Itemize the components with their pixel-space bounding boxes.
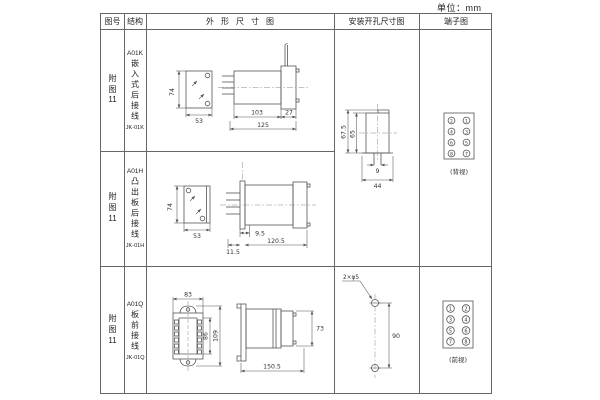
dim-label: 53 xyxy=(195,118,203,125)
terminal-cell-rear: 2 1 4 3 6 5 8 7 (背视) xyxy=(419,29,493,266)
outline-drawing-a01h: 74 53 9.5 xyxy=(146,151,334,266)
dim-label: 73 xyxy=(316,326,324,333)
terminal-number: 8 xyxy=(450,151,453,157)
type-code: JK-01Q xyxy=(126,355,145,361)
dim-label: 27 xyxy=(285,110,293,117)
structure-label: 板前接线 xyxy=(130,310,141,352)
terminal-number: 8 xyxy=(464,339,467,345)
view-caption: (背视) xyxy=(450,167,468,176)
dim-label: 150.5 xyxy=(263,364,281,371)
dim-label: 44 xyxy=(374,183,382,190)
header-mounting: 安装开孔尺寸图 xyxy=(334,14,419,29)
dimension-table: 图号 结构 外形尺寸图 安装开孔尺寸图 端子图 附 图 11 附 图 11 附 … xyxy=(100,13,492,394)
terminal-number: 1 xyxy=(465,118,468,124)
dim-label: 9.5 xyxy=(255,231,265,238)
terminal-number: 2 xyxy=(464,306,467,312)
terminal-number: 7 xyxy=(449,339,452,345)
terminal-number: 4 xyxy=(464,317,467,323)
figure-no-row1: 附 图 11 xyxy=(101,29,124,151)
model-label: A01H xyxy=(127,168,143,175)
mounting-drawing-rear: 67.5 65 9 44 xyxy=(334,29,419,266)
header-terminal: 端子图 xyxy=(419,14,493,29)
terminal-number: 6 xyxy=(450,140,453,146)
structure-row2: A01H 凸出板后接线 JK-01H xyxy=(124,151,146,266)
hole-callout: 2×φ5 xyxy=(343,275,359,281)
dim-label: 9 xyxy=(376,168,380,175)
dim-label: 74 xyxy=(169,88,176,96)
terminal-number: 2 xyxy=(450,118,453,124)
dim-label: 120.5 xyxy=(267,238,285,245)
dim-label: 109 xyxy=(213,330,220,342)
terminal-number: 3 xyxy=(465,129,468,135)
figure-no-row2: 附 图 11 xyxy=(101,151,124,266)
terminal-diagram-front: 1 2 3 4 5 6 7 8 (前视) xyxy=(419,266,493,395)
dim-label: 86 xyxy=(203,332,210,340)
type-code: JK-01H xyxy=(126,243,144,249)
outline-cell-a01k: 74 53 103 xyxy=(146,29,334,151)
dim-label: 11.5 xyxy=(226,249,240,256)
header-structure: 结构 xyxy=(124,14,146,29)
datasheet-page: 单位：mm 图号 结构 外形尺寸图 安装开孔尺寸图 端子图 附 图 11 附 图… xyxy=(0,0,600,400)
dim-label: 53 xyxy=(193,233,201,240)
figure-no-row3: 附 图 11 xyxy=(101,266,124,395)
terminal-cell-front: 1 2 3 4 5 6 7 8 (前视) xyxy=(419,266,493,395)
terminal-number: 6 xyxy=(464,328,467,334)
terminal-diagram-rear: 2 1 4 3 6 5 8 7 (背视) xyxy=(419,29,493,266)
dim-label: 65 xyxy=(350,130,357,138)
header-outline: 外形尺寸图 xyxy=(146,14,334,29)
mounting-drawing-front: 2×φ5 90 xyxy=(334,266,419,395)
model-label: A01K xyxy=(127,50,143,57)
mounting-cell-front: 2×φ5 90 xyxy=(334,266,419,395)
terminal-number: 5 xyxy=(449,328,452,334)
outline-drawing-a01k: 74 53 103 xyxy=(146,29,334,151)
structure-label: 凸出板后接线 xyxy=(130,177,141,240)
terminal-number: 7 xyxy=(465,151,468,157)
dim-label: 90 xyxy=(392,333,400,340)
outline-drawing-a01q: 83 86 109 73 xyxy=(146,266,334,395)
view-caption: (前视) xyxy=(449,355,467,364)
model-label: A01Q xyxy=(127,301,144,308)
header-figure-no: 图号 xyxy=(101,14,124,29)
dim-label: 74 xyxy=(167,203,174,211)
terminal-number: 3 xyxy=(449,317,452,323)
terminal-number: 5 xyxy=(465,140,468,146)
dim-label: 83 xyxy=(184,292,192,299)
dim-label: 67.5 xyxy=(341,125,348,139)
dim-label: 125 xyxy=(257,122,269,129)
structure-row1: A01K 嵌入式后接线 JK-01K xyxy=(124,29,146,151)
outline-cell-a01q: 83 86 109 73 xyxy=(146,266,334,395)
mounting-cell-rear: 67.5 65 9 44 xyxy=(334,29,419,266)
type-code: JK-01K xyxy=(126,125,144,131)
terminal-number: 4 xyxy=(450,129,453,135)
dim-label: 103 xyxy=(251,110,263,117)
outline-cell-a01h: 74 53 9.5 xyxy=(146,151,334,266)
structure-row3: A01Q 板前接线 JK-01Q xyxy=(124,266,146,395)
structure-label: 嵌入式后接线 xyxy=(130,59,141,122)
terminal-number: 1 xyxy=(449,306,452,312)
